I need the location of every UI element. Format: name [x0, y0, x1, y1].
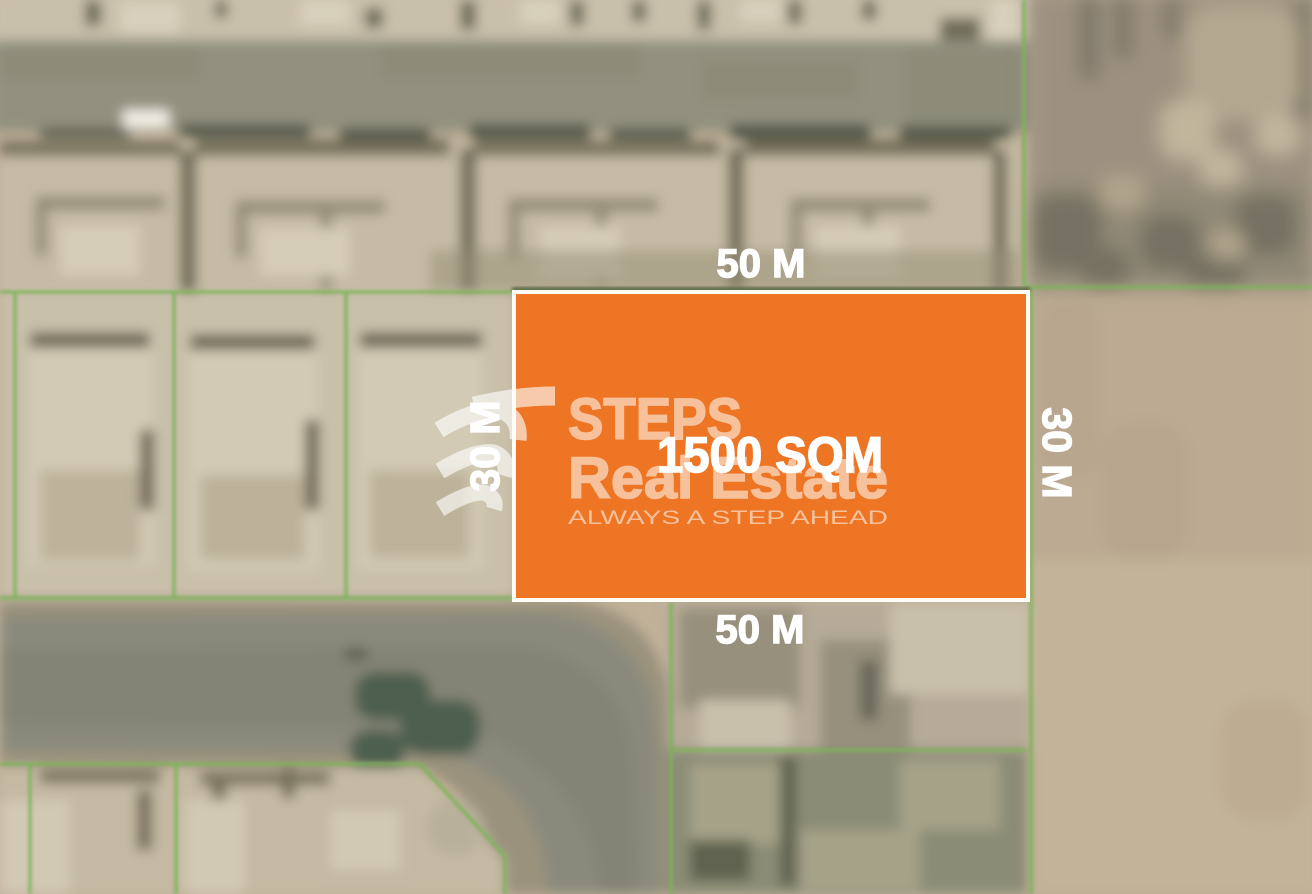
svg-text:1500 SQM: 1500 SQM [657, 427, 883, 483]
svg-text:50 M: 50 M [717, 242, 806, 286]
svg-text:30 M: 30 M [462, 400, 508, 491]
svg-text:30 M: 30 M [1034, 407, 1080, 498]
svg-text:ALWAYS A STEP AHEAD: ALWAYS A STEP AHEAD [568, 507, 888, 529]
svg-text:50 M: 50 M [716, 608, 805, 652]
